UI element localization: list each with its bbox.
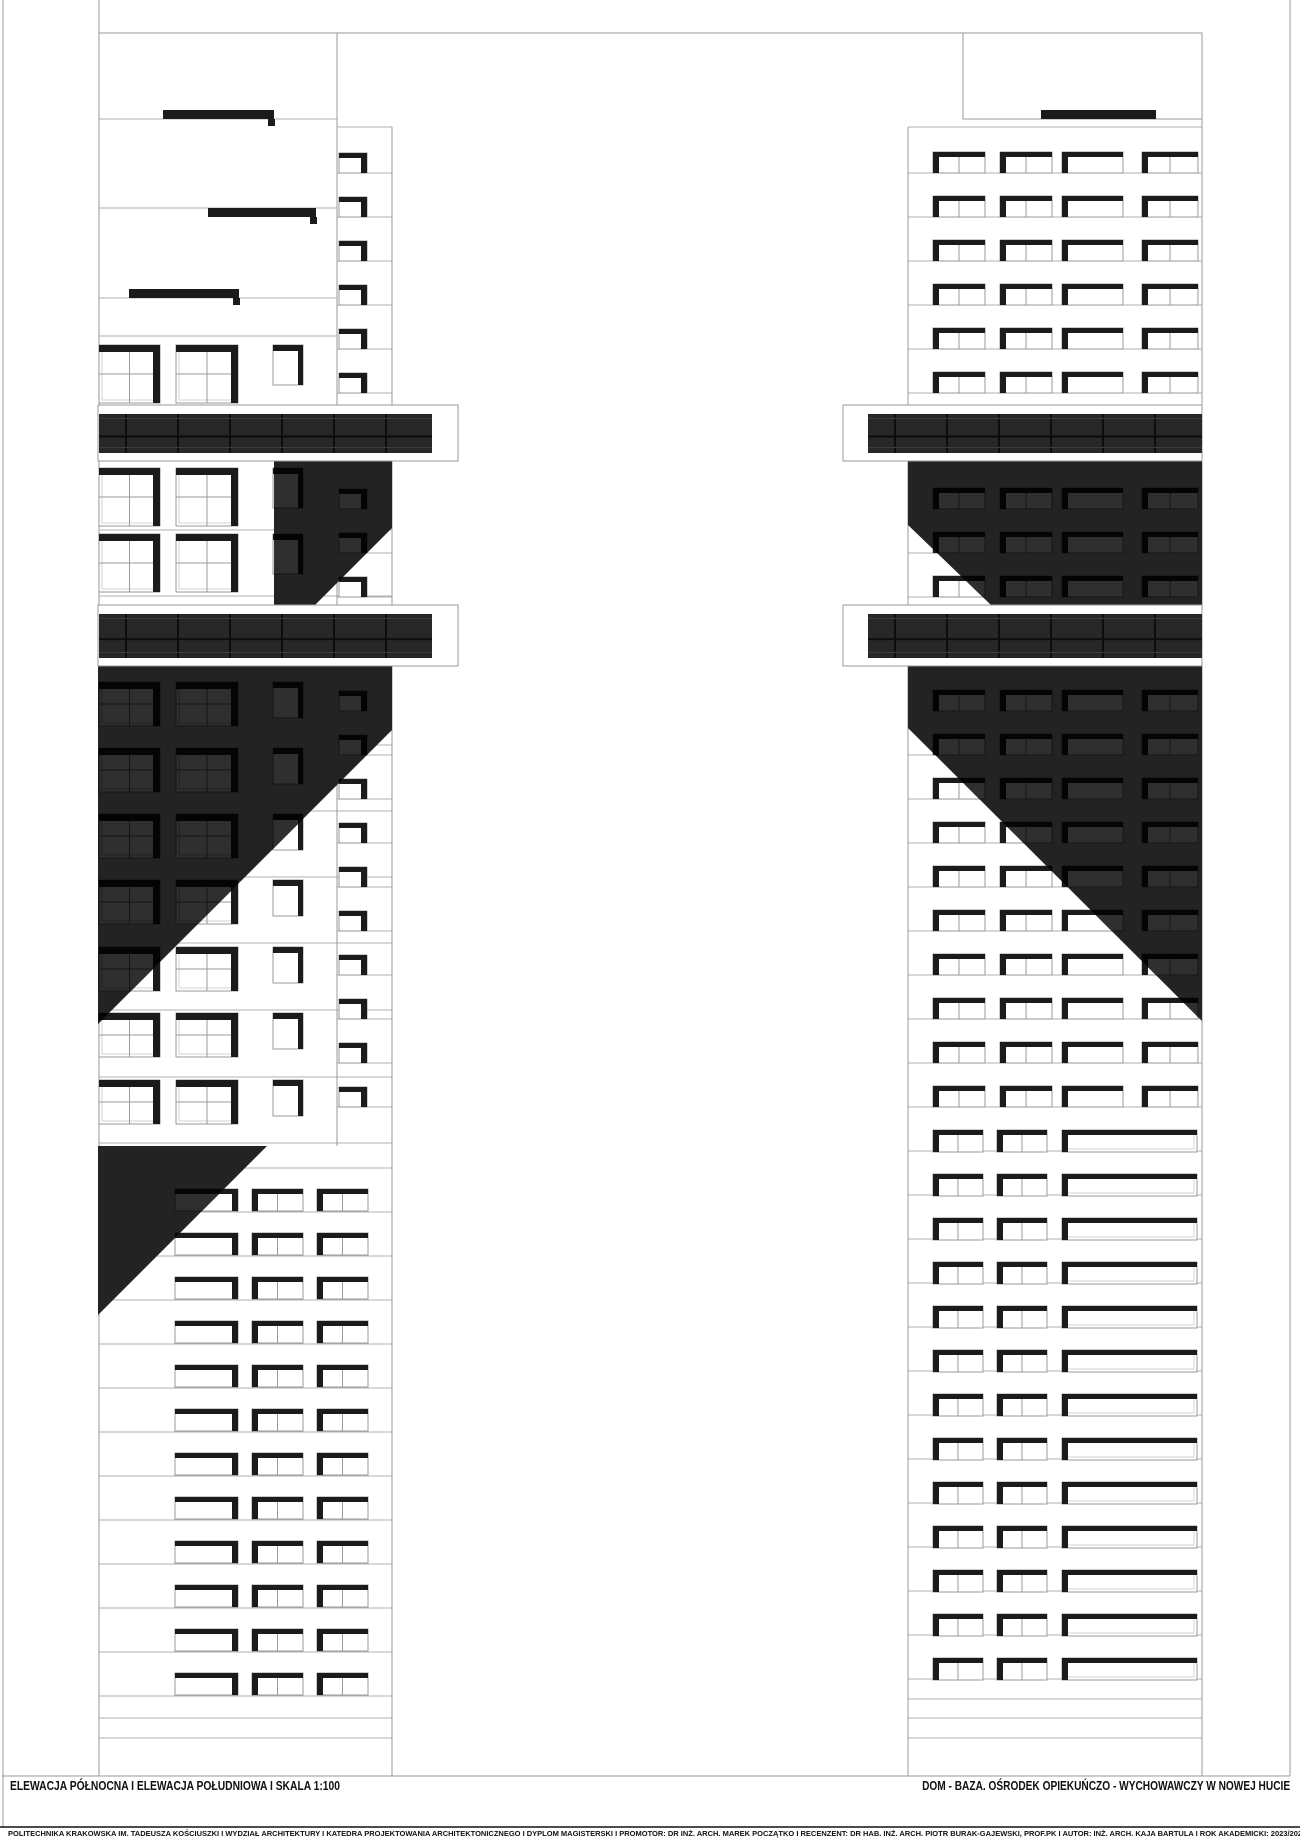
parapet-bar — [129, 289, 240, 305]
parapet-bar — [163, 110, 275, 126]
north-elevation — [98, 0, 458, 1776]
elevation-svg — [0, 0, 1300, 1839]
parapet-bar — [208, 208, 317, 224]
south-elevation — [843, 33, 1202, 1776]
balcony-band — [98, 605, 458, 666]
title-block-footer: POLITECHNIKA KRAKOWSKA IM. TADEUSZA KOŚC… — [8, 1829, 1292, 1838]
project-title-right: DOM - BAZA. OŚRODEK OPIEKUŃCZO - WYCHOWA… — [922, 1778, 1290, 1793]
drawing-sheet: ELEWACJA PÓŁNOCNA I ELEWACJA POŁUDNIOWA … — [0, 0, 1300, 1839]
elevation-title-left: ELEWACJA PÓŁNOCNA I ELEWACJA POŁUDNIOWA … — [10, 1779, 340, 1793]
balcony-band — [843, 405, 1202, 461]
balcony-band — [98, 405, 458, 461]
balcony-band — [843, 605, 1202, 666]
elevation-drawing — [0, 0, 1300, 1839]
